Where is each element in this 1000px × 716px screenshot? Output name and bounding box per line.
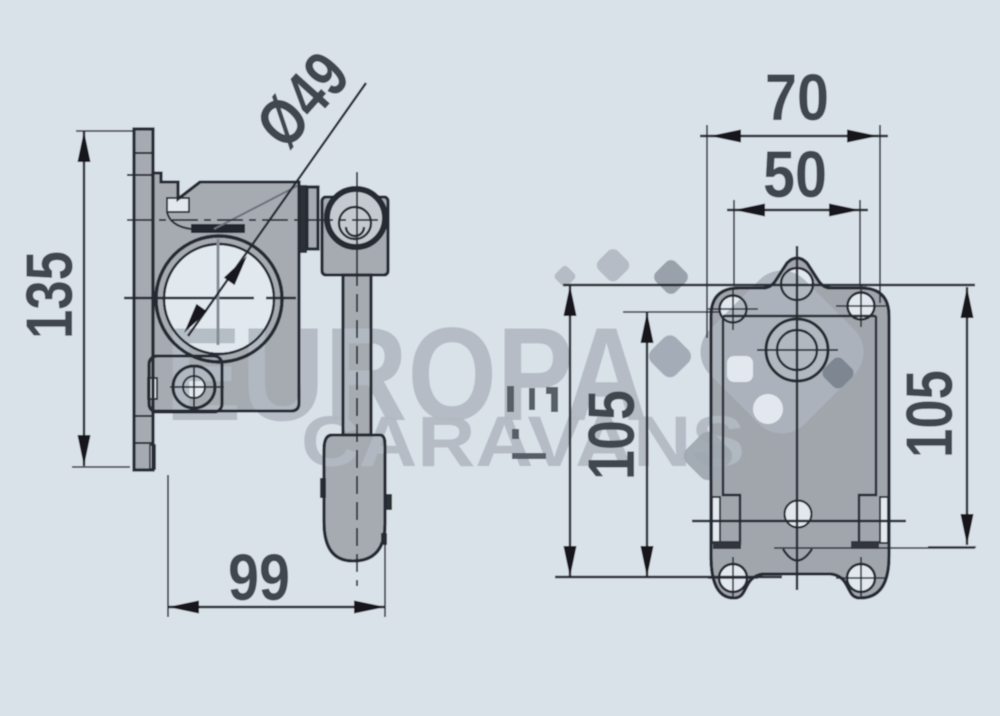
svg-text:50: 50 (763, 137, 827, 211)
svg-text:135: 135 (12, 251, 86, 339)
svg-text:105: 105 (892, 370, 966, 458)
svg-text:70: 70 (765, 60, 829, 134)
svg-text:99: 99 (228, 540, 290, 614)
svg-text:CARAVANS: CARAVANS (301, 403, 745, 482)
svg-text:105: 105 (574, 390, 648, 480)
